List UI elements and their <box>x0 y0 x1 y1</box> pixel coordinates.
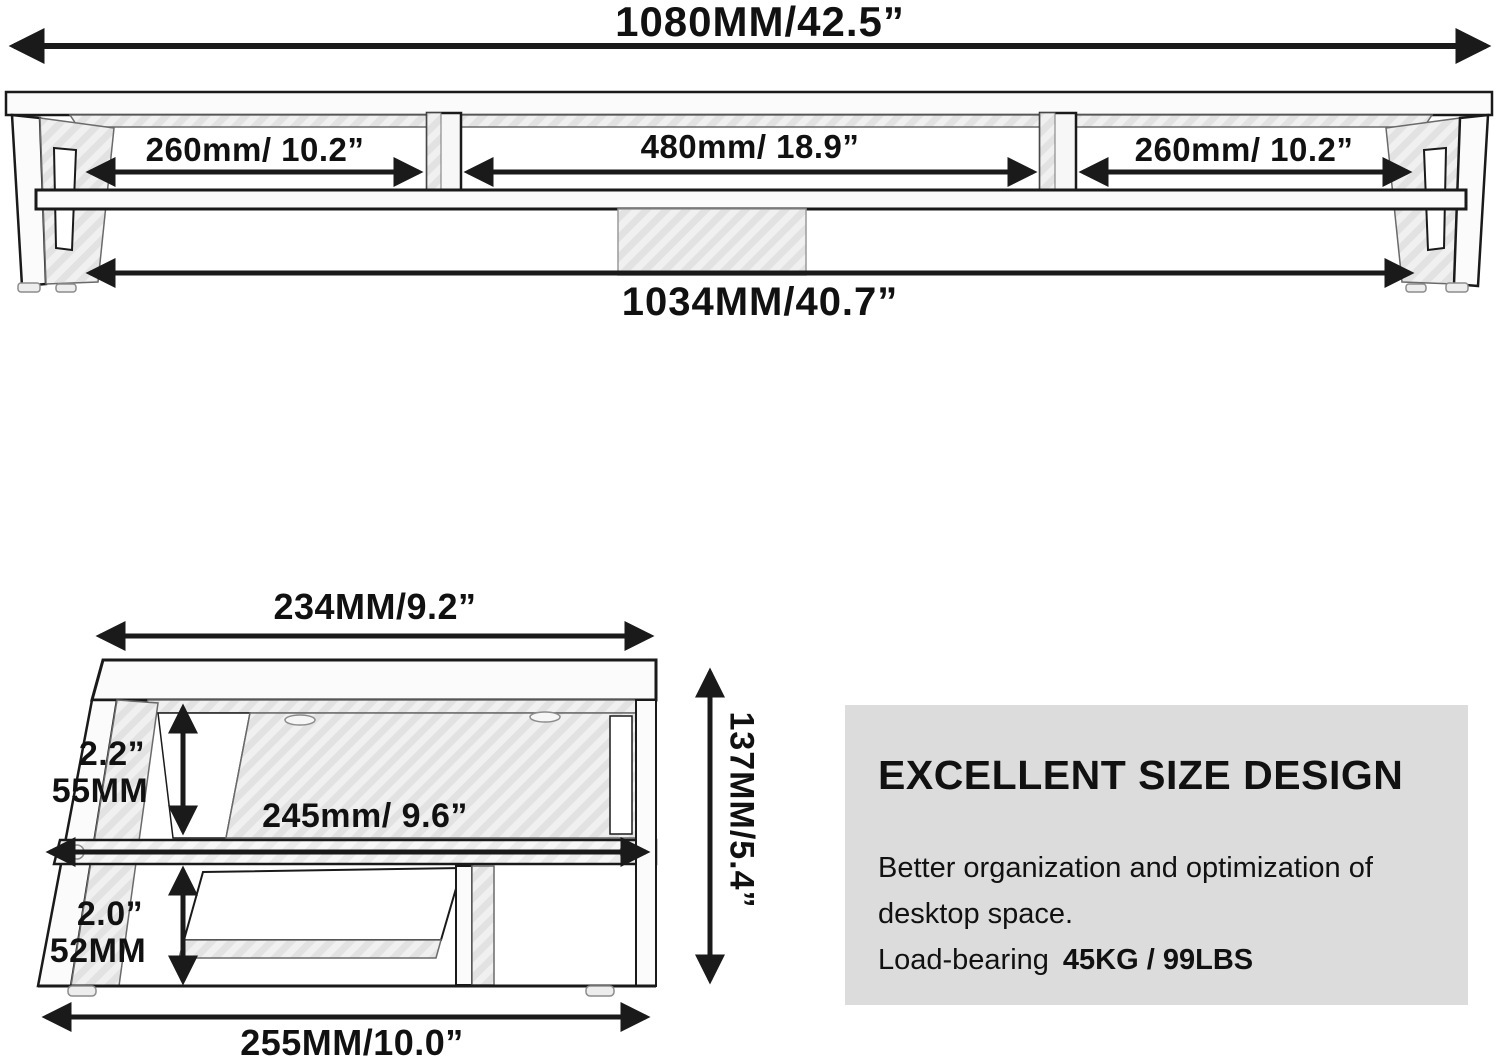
dim-label-center-section: 480mm/ 18.9” <box>641 128 860 166</box>
dim-label-total-top: 1080MM/42.5” <box>615 0 905 46</box>
left-foot <box>56 284 76 292</box>
dim-label-upper-clearance-mm: 55MM <box>52 772 148 811</box>
side-support-post <box>456 866 472 985</box>
product-dimension-diagram: 1080MM/42.5” 260mm/ 10.2” 480mm/ 18.9” 2… <box>0 0 1500 1061</box>
top-board <box>6 92 1492 115</box>
dim-label-left-section: 260mm/ 10.2” <box>146 131 365 169</box>
screw-hole <box>285 715 315 725</box>
dim-label-lower-clearance-mm: 52MM <box>50 932 146 971</box>
info-box-title: EXCELLENT SIZE DESIGN <box>878 752 1403 799</box>
dim-label-side-middle-width: 245mm/ 9.6” <box>262 797 468 836</box>
dim-label-lower-clearance-in: 2.0” <box>77 895 143 934</box>
top-view-drawing <box>6 92 1492 292</box>
left-foot <box>18 283 40 292</box>
side-lower-shelf-edge <box>179 940 441 958</box>
side-slab-underside <box>143 700 642 713</box>
info-box-line1: Better organization and optimization of <box>878 845 1373 891</box>
side-right-slot <box>610 716 632 834</box>
left-divider <box>427 113 461 190</box>
side-top-slab <box>92 660 656 700</box>
info-box-line2: desktop space. <box>878 891 1373 937</box>
lower-rail <box>36 190 1466 209</box>
right-foot <box>1406 284 1426 292</box>
dim-label-side-top-width: 234MM/9.2” <box>273 586 476 628</box>
center-block <box>618 209 806 275</box>
info-box: EXCELLENT SIZE DESIGN Better organizatio… <box>845 705 1468 1005</box>
top-board-underside <box>70 115 1432 127</box>
side-support-post-side <box>472 866 494 985</box>
side-right-edge <box>636 700 656 986</box>
right-divider <box>1040 113 1076 190</box>
side-lower-shelf <box>184 868 462 940</box>
load-bearing-label: Load-bearing <box>878 944 1049 976</box>
load-bearing-value: 45KG / 99LBS <box>1063 944 1253 976</box>
screw-hole <box>530 712 560 722</box>
info-box-line3: Load-bearing45KG / 99LBS <box>878 937 1373 983</box>
side-foot <box>68 986 96 996</box>
dim-label-total-bottom: 1034MM/40.7” <box>622 280 899 325</box>
right-foot <box>1446 283 1468 292</box>
dim-label-side-bottom-width: 255MM/10.0” <box>240 1022 464 1061</box>
dim-label-upper-clearance-in: 2.2” <box>79 735 145 774</box>
info-box-body: Better organization and optimization of … <box>878 845 1373 983</box>
dim-label-side-height: 137MM/5.4” <box>722 711 761 908</box>
side-foot <box>586 986 614 996</box>
dim-label-right-section: 260mm/ 10.2” <box>1135 131 1354 169</box>
